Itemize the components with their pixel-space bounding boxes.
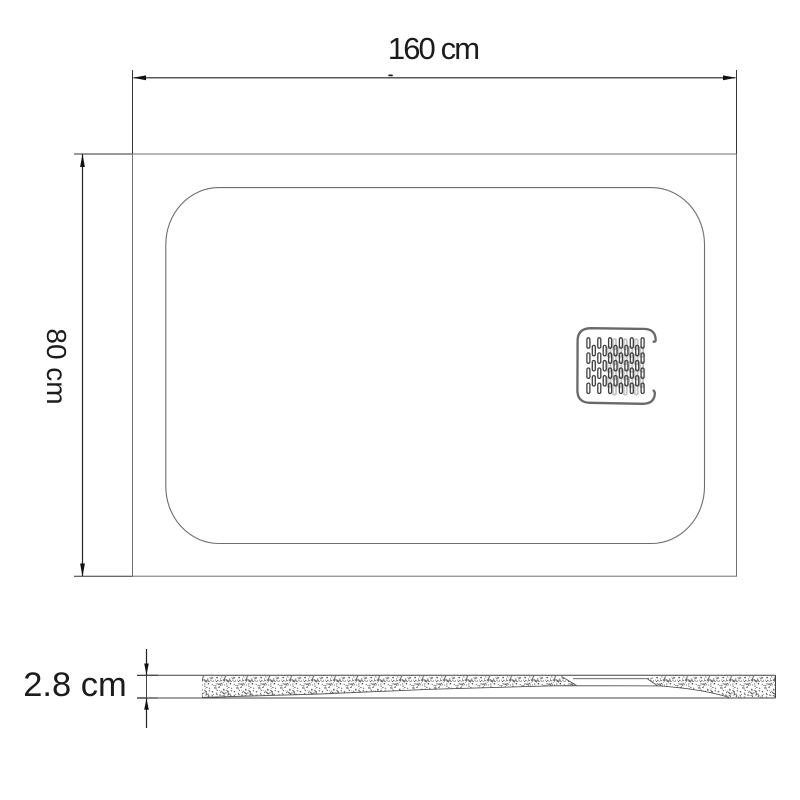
- svg-text:80 cm: 80 cm: [41, 328, 72, 404]
- svg-text:2.8 cm: 2.8 cm: [23, 666, 127, 704]
- svg-text:160 cm: 160 cm: [388, 31, 478, 66]
